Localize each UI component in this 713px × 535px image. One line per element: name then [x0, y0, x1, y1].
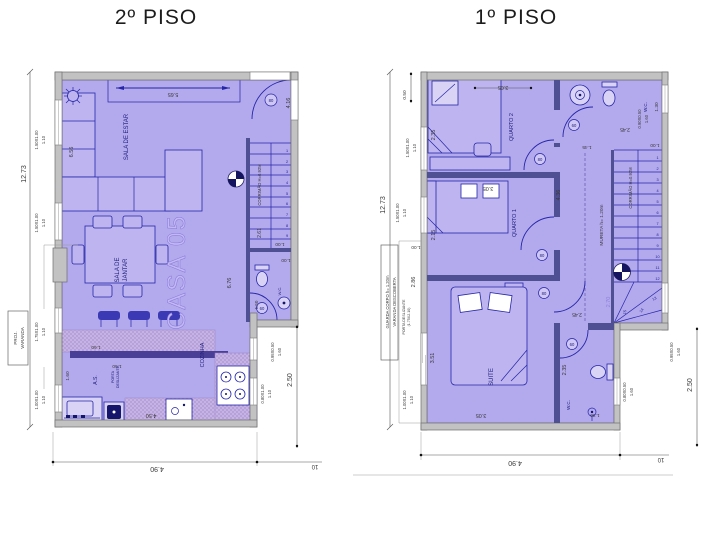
window-label: 1.50X1.00 [34, 130, 39, 150]
window-label: 1.00X1.00 [34, 390, 39, 410]
north-compass-icon [228, 171, 244, 187]
window-label: 0.95X0.50 [669, 342, 674, 362]
room-suite: SUITE [489, 368, 495, 386]
room-sala-jantar2: JANTAR [123, 258, 129, 282]
note-varanda: VARANDA [20, 327, 25, 348]
window-label: 1.10 [41, 218, 46, 227]
note-porta2: DESLIZANTE [116, 365, 120, 388]
left-plan-title: 2º PISO [86, 6, 226, 30]
dim-offset: 0.50 [402, 90, 408, 100]
dim-suite-width: 3.05 [476, 412, 487, 418]
stair-number: 5 [286, 192, 288, 196]
dim-bottom-r: 10 [657, 456, 664, 462]
dim-stair-run: 2.61 [257, 228, 263, 238]
dim-as-width: 1.60 [65, 371, 71, 381]
note-varanda-descoberta: VARANDA DESCOBERTA [392, 277, 397, 327]
stair-number: 9 [656, 244, 658, 248]
dim-bottom: 4.90 [150, 465, 164, 472]
toilet-suite-icon [591, 364, 614, 380]
window-label: 1.10 [41, 395, 46, 404]
dim-q2-width: 3.05 [498, 84, 509, 90]
stove-icon [217, 366, 249, 405]
dim-counter-a: 1.60 [91, 344, 101, 350]
stair-number: 2 [656, 167, 658, 171]
window-label: 1.10 [409, 395, 414, 404]
washing-machine-icon [62, 397, 102, 423]
stair-number: 9 [286, 234, 288, 238]
stair-number: 4 [656, 189, 658, 193]
note-porta1: PORTA [111, 370, 115, 383]
window-label: 1.10 [41, 135, 46, 144]
stair-number: 3 [286, 170, 288, 174]
window-label: 1.60 [629, 387, 634, 396]
stair-number: 1 [656, 156, 658, 160]
dim-right-v: 2.50 [287, 373, 294, 387]
suite-wc-door-size: 60 [570, 342, 575, 347]
dim-wc-depth: 1.50 [254, 300, 259, 309]
window-label: 1.10 [402, 208, 407, 217]
room-sala-jantar: SALA DE [115, 257, 121, 282]
stair-number: 1 [286, 149, 288, 153]
stair-number: 10 [655, 255, 659, 259]
dim-wc-width: 1.00 [281, 257, 291, 263]
suite-door-size: 80 [542, 291, 547, 296]
wc-door-size: 60 [572, 123, 577, 128]
stair-number: 6 [656, 211, 658, 215]
room-sala-estar: SALA DE ESTAR [124, 113, 130, 160]
window-label: 1.60 [644, 114, 649, 123]
window-label: 0.80X0.50 [622, 382, 627, 402]
note-porta-size: (1.75X2.10) [407, 308, 411, 327]
stair-number: 3 [656, 178, 658, 182]
stair-number: 4 [286, 181, 288, 185]
dim-bottom-r: 10 [311, 463, 318, 469]
room-wc: W.C. [277, 287, 282, 296]
stair-number: 12 [655, 277, 659, 281]
watermark-casa05: CASA 05 [163, 214, 191, 329]
dim-stair-width: 1.00 [275, 241, 285, 247]
dim-kitchen: 4.50 [146, 412, 157, 418]
note-corrimao: CORRIMÃO H=0.92M [628, 167, 633, 209]
note-porta-deslizante: PORTA DESLIZANTE [402, 299, 406, 335]
room-wc-suite: W.C. [566, 400, 571, 410]
window-label: 1.50X1.00 [405, 138, 410, 158]
window-label: 1.10 [412, 143, 417, 152]
note-guarda-corpo: GUARDA CORPO h= 1.20m [385, 275, 390, 328]
note-corrimao: CORRIMÃO H=0.92M [257, 164, 262, 206]
stair-number: 11 [656, 266, 660, 270]
wc-sink-icon [570, 85, 590, 105]
stair-number: 8 [286, 224, 288, 228]
dim-wc-right: 1.30 [654, 102, 660, 112]
window-label: 1.50X1.00 [34, 213, 39, 233]
stair-number: 7 [286, 213, 288, 217]
dim-q2-depth: 2.35 [431, 130, 437, 141]
right-plan-title: 1º PISO [446, 6, 586, 30]
dim-right-v: 2.50 [687, 378, 694, 392]
note-mureta: MURETA h= 1.20m [599, 204, 605, 245]
wc-door-size: 60 [260, 306, 265, 311]
dim-right-top: 4.16 [286, 98, 292, 109]
stair-number: 5 [656, 200, 658, 204]
note-proj: PROJ. [13, 331, 18, 344]
room-wc-top: W.C. [643, 102, 648, 112]
dim-sala: 6.56 [69, 147, 75, 158]
window-label: 1.60 [676, 347, 681, 356]
floorplan-sheet: 2º PISO 1º PISO [0, 0, 713, 535]
plan-1-piso: 60 80 80 80 60 [353, 55, 713, 535]
north-compass-icon [614, 264, 631, 281]
proj-varanda-box [8, 311, 28, 365]
dim-suite-depth: 3.51 [430, 353, 436, 364]
dim-wc-top: 2.45 [620, 126, 630, 132]
dim-landing: 2.45 [572, 311, 582, 317]
window-label: 1.10 [267, 389, 272, 398]
quarto1-door-size: 80 [540, 253, 545, 258]
dim-total-height: 12.73 [380, 196, 387, 214]
dim-varanda: 2.86 [411, 277, 417, 288]
ceiling-fan-icon [64, 87, 82, 105]
room-as: A.S. [93, 375, 99, 384]
toilet-icon [255, 265, 269, 287]
room-quarto2: QUARTO 2 [509, 113, 515, 141]
dim-bottom: 4.90 [508, 459, 522, 466]
window-label: 0.80X1.00 [260, 384, 265, 404]
room-cozinha: COZINHA [200, 342, 206, 367]
plan-2-piso: 80 60 [0, 55, 360, 535]
window-label: 0.90X0.50 [637, 109, 642, 129]
window-label: 1.50X1.00 [395, 203, 400, 223]
window-label: 0.95X0.50 [270, 342, 275, 362]
dim-varanda-b: 1.00 [411, 244, 421, 250]
dim-q1-width: 3.05 [483, 185, 494, 191]
stair-number: 8 [656, 233, 658, 237]
kitchen-sink-icon [166, 399, 192, 420]
quarto2-door-size: 80 [538, 157, 543, 162]
window-label: 1.75X1.00 [34, 322, 39, 342]
dim-top: 5.65 [168, 91, 179, 97]
dim-q1-depth: 2.15 [431, 230, 437, 241]
dim-corridor: 4.36 [556, 190, 562, 201]
dim-mezz: 2.70 [606, 297, 612, 308]
window-label: 1.60 [277, 347, 282, 356]
stair-number: 2 [286, 160, 288, 164]
window-label: 1.10 [41, 327, 46, 336]
stair-number: 15 [623, 310, 628, 315]
dim-swc-depth: 2.35 [562, 365, 568, 376]
entrance-door-size: 80 [269, 98, 274, 103]
dim-hall: 6.76 [227, 278, 233, 289]
dim-swc-width: 1.30 [590, 412, 600, 418]
dim-stair-a: 1.45 [582, 144, 592, 150]
stair-number: 7 [656, 222, 658, 226]
wc-sink-icon [278, 297, 290, 309]
bed-quarto2-icon [428, 77, 501, 153]
stair-number: 6 [286, 202, 288, 206]
dim-total-height: 12.73 [21, 165, 28, 183]
window-label: 1.00X1.00 [402, 390, 407, 410]
room-quarto1: QUARTO 1 [512, 209, 518, 237]
dim-stair-b: 1.00 [650, 142, 660, 148]
bed-quarto1-icon [427, 181, 508, 233]
